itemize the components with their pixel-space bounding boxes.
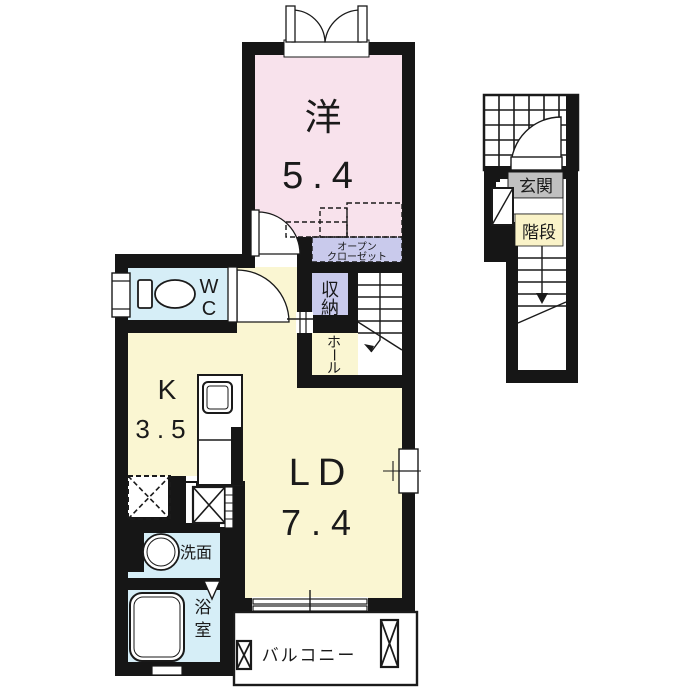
window-wc xyxy=(112,273,130,317)
kitchen-counter xyxy=(198,375,242,485)
western-room-label: 洋 xyxy=(305,97,342,138)
folding-door-strip xyxy=(225,487,233,528)
wc-label-w: W xyxy=(200,276,219,298)
door-leaf xyxy=(358,6,367,42)
folding-door-icon xyxy=(225,487,233,528)
wall-segment xyxy=(348,273,358,315)
wall-segment xyxy=(402,492,415,612)
wall-segment xyxy=(230,598,252,612)
wall-segment xyxy=(484,222,518,262)
hall-label-char3: ル xyxy=(327,360,341,376)
wall-segment xyxy=(115,316,128,676)
tub-outer xyxy=(130,593,184,661)
window-frame xyxy=(112,273,130,317)
stair-winder xyxy=(518,302,566,323)
western-room-size: 5.4 xyxy=(282,155,362,197)
kitchen-size: 3.5 xyxy=(135,414,192,444)
genkan-step xyxy=(508,198,563,214)
living-label: LD xyxy=(289,452,354,494)
wall-segment xyxy=(115,254,128,274)
wall-segment xyxy=(368,598,415,612)
washroom-label: 洗面 xyxy=(180,544,212,562)
counter-end-wall xyxy=(231,427,242,485)
stairs-label: 階段 xyxy=(522,223,556,242)
balcony-label: バルコニー xyxy=(262,646,357,665)
storage-label-char1: 収 xyxy=(321,280,339,300)
bath-step xyxy=(152,666,182,675)
floor-plan: 洋 5.4 オープン クローゼット 収 納 W C ホ ー ル K 3.5 LD… xyxy=(0,0,700,700)
toilet-tank xyxy=(138,280,152,308)
washing-machine-space xyxy=(193,487,225,523)
french-door xyxy=(284,6,369,57)
wall-segment xyxy=(115,320,237,333)
door-leaf xyxy=(511,157,562,170)
wall-tick xyxy=(494,171,500,182)
wc-label-c: C xyxy=(202,298,216,320)
wall-segment xyxy=(115,578,220,590)
door-leaf xyxy=(228,267,237,322)
wall-segment xyxy=(115,254,252,268)
wall-segment xyxy=(506,262,518,383)
living-size: 7.4 xyxy=(281,502,361,543)
wall-segment xyxy=(297,375,415,388)
stairs-in-unit xyxy=(358,273,402,352)
washbasin-icon xyxy=(128,533,179,572)
basin-outer xyxy=(143,534,179,570)
floor-plan-canvas: 洋 5.4 オープン クローゼット 収 納 W C ホ ー ル K 3.5 LD… xyxy=(0,0,700,700)
door-arc-left xyxy=(292,10,325,42)
open-closet-label-line2: クローゼット xyxy=(327,251,387,263)
storage-label-char2: 納 xyxy=(321,298,339,318)
stairs-external xyxy=(518,246,566,323)
bath-label-char2: 室 xyxy=(195,621,212,640)
wall-segment xyxy=(506,370,578,383)
bath-label-char1: 浴 xyxy=(195,598,212,617)
door-leaf xyxy=(286,6,295,42)
door-leaf xyxy=(251,210,259,256)
kitchen-label: K xyxy=(158,374,177,405)
stairs-arrow-head xyxy=(536,293,548,304)
basin-counter xyxy=(128,533,144,572)
refrigerator-space xyxy=(128,476,170,519)
wall-segment xyxy=(297,262,415,273)
entrance-label: 玄関 xyxy=(519,177,553,196)
shoe-cabinet xyxy=(492,188,513,225)
wall-segment xyxy=(566,95,578,383)
wall-segment xyxy=(402,42,415,450)
door-arc-right xyxy=(325,10,361,42)
bathtub-icon xyxy=(130,593,184,661)
opening-gap xyxy=(296,312,313,333)
toilet-bowl xyxy=(155,280,195,308)
wall-segment xyxy=(233,485,245,612)
toilet-icon xyxy=(138,280,195,308)
